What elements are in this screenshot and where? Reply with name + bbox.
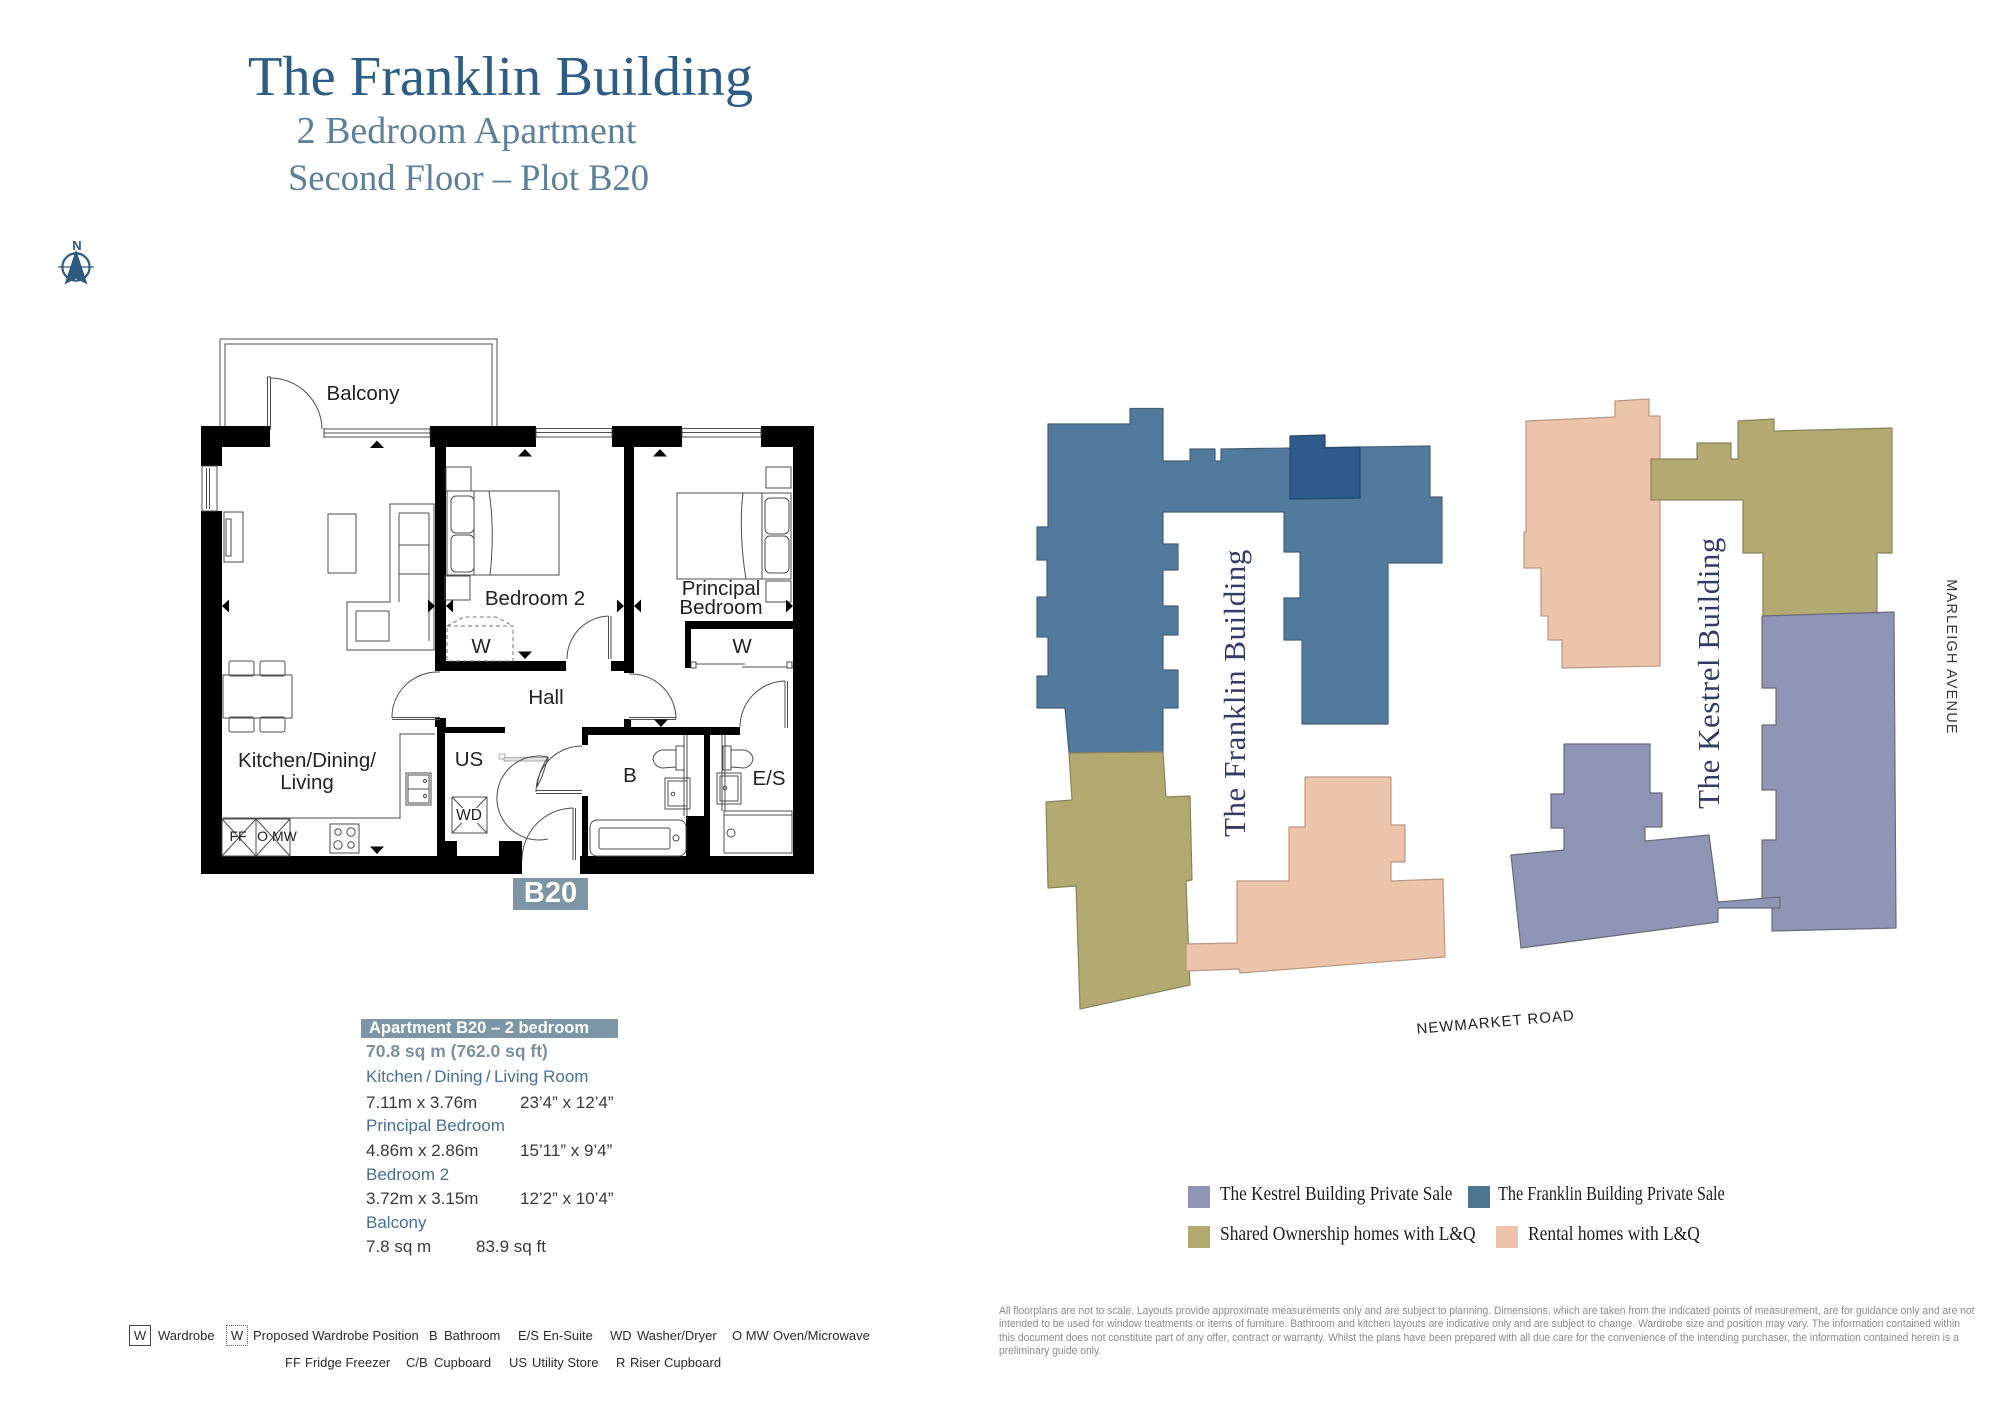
svg-text:E/S: E/S — [752, 767, 785, 790]
svg-text:W: W — [471, 635, 491, 658]
svg-text:WD: WD — [456, 807, 482, 824]
svg-text:B: B — [623, 764, 637, 787]
svg-text:Hall: Hall — [528, 686, 563, 709]
svg-text:MARLEIGH AVENUE: MARLEIGH AVENUE — [1943, 579, 1959, 735]
svg-text:Bedroom: Bedroom — [679, 596, 762, 619]
svg-text:NEWMARKET ROAD: NEWMARKET ROAD — [1416, 1007, 1576, 1038]
svg-text:N: N — [72, 238, 81, 253]
svg-text:W: W — [732, 635, 752, 658]
svg-text:Bedroom 2: Bedroom 2 — [485, 587, 585, 610]
svg-text:The Kestrel Building: The Kestrel Building — [1691, 537, 1726, 809]
svg-text:O MW: O MW — [257, 828, 297, 844]
svg-text:Kitchen/Dining/: Kitchen/Dining/ — [238, 749, 376, 772]
svg-text:US: US — [455, 748, 483, 771]
svg-text:The Franklin Building: The Franklin Building — [1217, 549, 1252, 837]
svg-text:Balcony: Balcony — [327, 382, 401, 405]
svg-text:FF: FF — [229, 828, 246, 844]
svg-text:Living: Living — [280, 771, 334, 794]
